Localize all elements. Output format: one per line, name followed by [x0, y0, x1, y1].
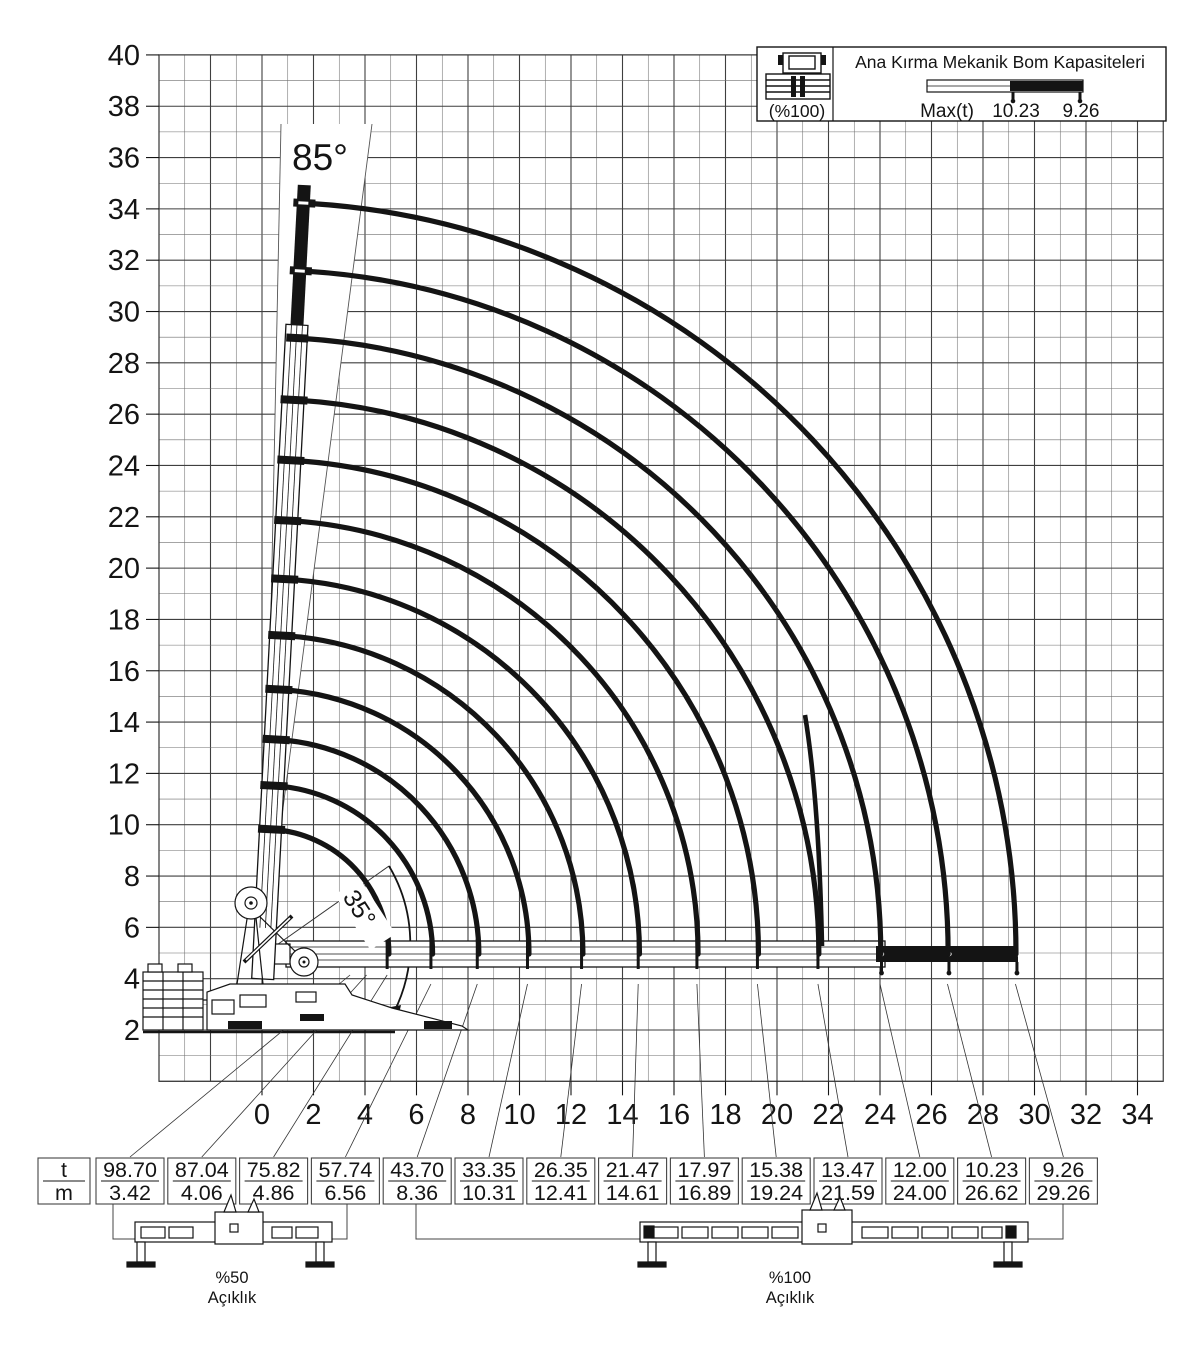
x-tick-label: 10	[503, 1099, 535, 1131]
leader-line	[633, 984, 639, 1157]
capacity-value: 12.00	[893, 1158, 947, 1182]
y-tick-label: 24	[108, 450, 140, 482]
reach-value: 4.06	[181, 1181, 223, 1205]
capacity-value: 17.97	[677, 1158, 731, 1182]
capacity-arc	[285, 636, 583, 954]
boom-tip-pin	[1015, 962, 1018, 971]
legend-max-label: Max(t)	[920, 101, 974, 122]
reach-value: 29.26	[1036, 1181, 1090, 1205]
x-tick-label: 24	[864, 1099, 896, 1131]
y-tick-label: 26	[108, 399, 140, 431]
reach-value: 10.31	[462, 1181, 516, 1205]
y-tick-label: 8	[124, 861, 140, 893]
reach-value: 8.36	[396, 1181, 438, 1205]
reach-value: 16.89	[677, 1181, 731, 1205]
x-tick-label: 0	[254, 1099, 270, 1131]
y-tick-label: 16	[108, 656, 140, 688]
y-tick-label: 6	[124, 912, 140, 944]
legend-max-value-2: 9.26	[1063, 101, 1100, 122]
y-tick-label: 22	[108, 502, 140, 534]
outrigger-figure-50	[127, 1195, 334, 1267]
reach-value: 4.86	[253, 1181, 295, 1205]
reach-value: 26.62	[965, 1181, 1019, 1205]
capacity-value: 98.70	[103, 1158, 157, 1182]
reach-value: 24.00	[893, 1181, 947, 1205]
legend-outrigger-mode: (%100)	[769, 101, 825, 121]
outrigger-right-percent: %100	[769, 1269, 811, 1287]
y-tick-label: 40	[108, 40, 140, 72]
reach-value: 14.61	[606, 1181, 660, 1205]
swing-arc	[389, 866, 410, 1012]
x-tick-label: 12	[555, 1099, 587, 1131]
capacity-value: 33.35	[462, 1158, 516, 1182]
y-tick-label: 4	[124, 964, 140, 996]
capacity-arcs	[272, 204, 1016, 954]
reach-value: 12.41	[534, 1181, 588, 1205]
y-tick-label: 14	[108, 707, 140, 739]
load-chart-page: 0246810121416182022242628303234246810121…	[0, 0, 1200, 1350]
x-tick-label: 26	[915, 1099, 947, 1131]
x-tick-label: 4	[357, 1099, 373, 1131]
y-tick-label: 28	[108, 348, 140, 380]
y-tick-label: 20	[108, 553, 140, 585]
x-tick-label: 28	[967, 1099, 999, 1131]
leader-line	[489, 984, 527, 1157]
capacity-value: 87.04	[175, 1158, 229, 1182]
leader-line	[1015, 984, 1063, 1157]
legend: (%100) Ana Kırma Mekanik Bom Kapasiteler…	[757, 47, 1166, 122]
reach-value: 6.56	[324, 1181, 366, 1205]
boom-tip-pin	[947, 962, 950, 971]
capacity-arc	[304, 339, 881, 955]
reach-value: 19.24	[749, 1181, 803, 1205]
capacity-value: 13.47	[821, 1158, 875, 1182]
y-tick-label: 18	[108, 604, 140, 636]
capacity-table: tm98.703.4287.044.0675.824.8657.746.5643…	[38, 1158, 1097, 1205]
capacity-value: 57.74	[318, 1158, 372, 1182]
x-tick-label: 6	[408, 1099, 424, 1131]
boom-horizontal	[268, 939, 1020, 975]
y-tick-label: 12	[108, 758, 140, 790]
bracket-right-b	[1026, 1204, 1063, 1239]
outrigger-left-percent: %50	[215, 1269, 248, 1287]
capacity-arc	[300, 400, 819, 954]
boom-tip-pin-dot	[947, 971, 952, 976]
y-tick-label: 38	[108, 91, 140, 123]
x-tick-label: 18	[709, 1099, 741, 1131]
outrigger-section: %50 Açıklık %100 Açıklık	[113, 1193, 1063, 1307]
capacity-value: 75.82	[247, 1158, 301, 1182]
boom-tip-pin	[880, 962, 883, 971]
legend-title: Ana Kırma Mekanik Bom Kapasiteleri	[855, 52, 1145, 72]
leader-line	[818, 984, 848, 1157]
x-tick-label: 34	[1121, 1099, 1153, 1131]
reach-value: 21.59	[821, 1181, 875, 1205]
y-tick-label: 10	[108, 810, 140, 842]
leader-line	[757, 984, 776, 1157]
bracket-left-a	[113, 1204, 137, 1239]
x-tick-label: 22	[812, 1099, 844, 1131]
leader-line	[697, 984, 704, 1157]
outrigger-right-label: Açıklık	[766, 1289, 815, 1307]
capacity-arc	[308, 271, 948, 954]
x-tick-label: 2	[305, 1099, 321, 1131]
capacity-arc	[313, 204, 1016, 954]
bracket-right-a	[416, 1204, 640, 1239]
x-tick-label: 16	[658, 1099, 690, 1131]
legend-max-value-1: 10.23	[992, 101, 1040, 122]
max-angle-label: 85°	[292, 137, 348, 178]
capacity-value: 21.47	[606, 1158, 660, 1182]
y-tick-label: 34	[108, 194, 140, 226]
outrigger-left-label: Açıklık	[208, 1289, 257, 1307]
table-header-t: t	[61, 1158, 67, 1182]
bracket-left-b	[331, 1204, 347, 1239]
capacity-value: 10.23	[965, 1158, 1019, 1182]
reach-value: 3.42	[109, 1181, 151, 1205]
capacity-value: 9.26	[1042, 1158, 1084, 1182]
capacity-value: 26.35	[534, 1158, 588, 1182]
capacity-value: 15.38	[749, 1158, 803, 1182]
crane-load-chart: 0246810121416182022242628303234246810121…	[0, 0, 1200, 1350]
y-tick-label: 36	[108, 143, 140, 175]
leader-line	[947, 984, 991, 1157]
table-header-m: m	[55, 1181, 73, 1205]
capacity-value: 43.70	[390, 1158, 444, 1182]
x-tick-label: 8	[460, 1099, 476, 1131]
boom-tip-pin-dot	[879, 971, 884, 976]
x-tick-label: 20	[761, 1099, 793, 1131]
boom-tip-pin-dot	[1015, 971, 1020, 976]
leader-line	[880, 984, 920, 1157]
y-tick-label: 30	[108, 297, 140, 329]
y-tick-label: 32	[108, 245, 140, 277]
x-tick-label: 30	[1018, 1099, 1050, 1131]
x-tick-label: 32	[1070, 1099, 1102, 1131]
y-tick-label: 2	[124, 1015, 140, 1047]
